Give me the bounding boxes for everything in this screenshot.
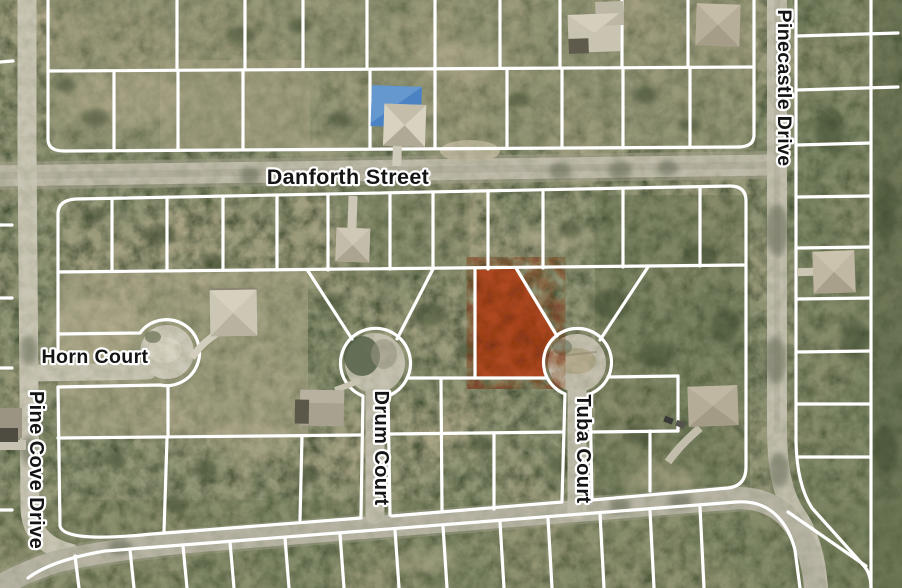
house (695, 3, 740, 47)
texture-overlay (0, 0, 902, 588)
street-label-tuba: Tuba Court (572, 394, 594, 503)
street-label-drum: Drum Court (370, 390, 392, 505)
street-label-pine-cove: Pine Cove Drive (25, 391, 47, 549)
aerial-map-image[interactable]: Danforth Street Pinecastle Drive Horn Co… (0, 0, 902, 588)
satellite-map: Danforth Street Pinecastle Drive Horn Co… (0, 0, 902, 588)
street-label-pinecastle: Pinecastle Drive (773, 9, 795, 166)
street-label-danforth: Danforth Street (267, 165, 429, 189)
street-label-horn: Horn Court (42, 346, 149, 368)
